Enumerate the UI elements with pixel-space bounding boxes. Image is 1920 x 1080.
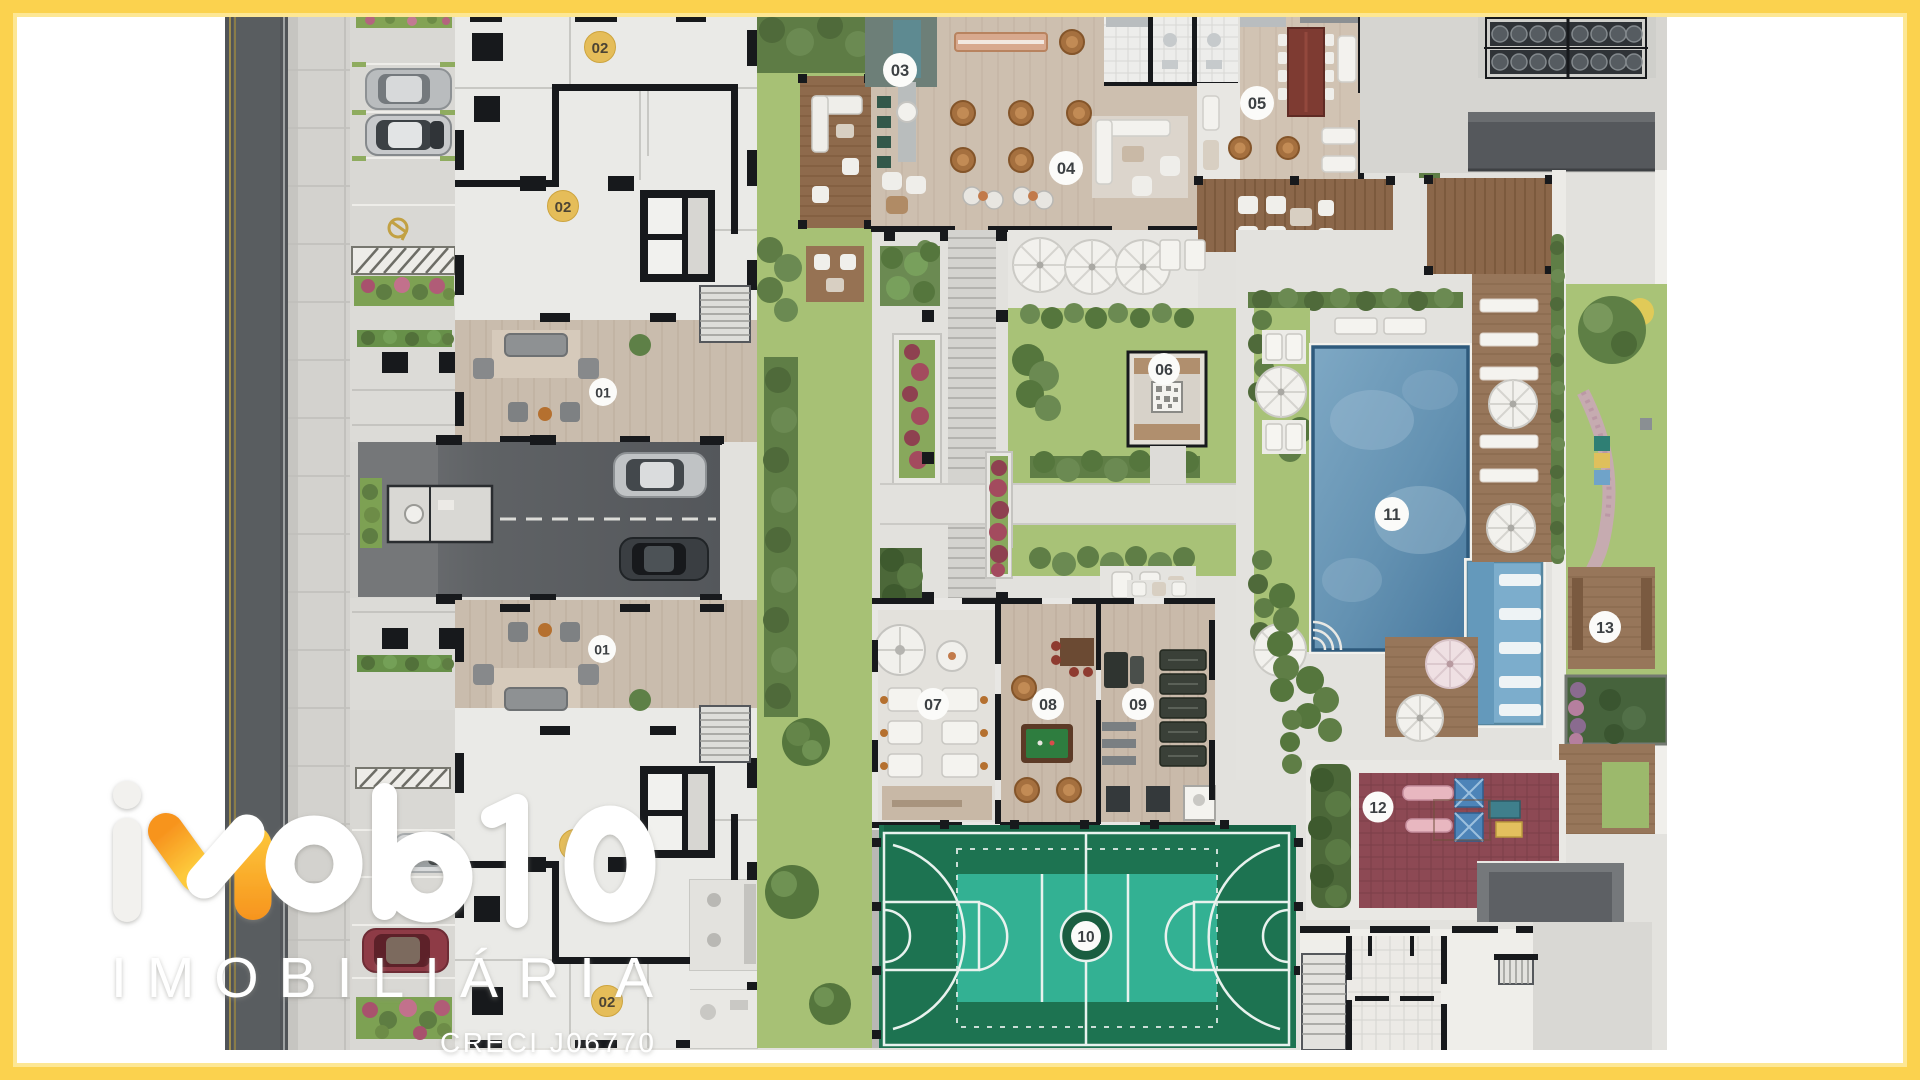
svg-text:01: 01 — [595, 385, 611, 401]
svg-text:05: 05 — [1248, 95, 1266, 113]
svg-text:08: 08 — [1039, 697, 1057, 714]
svg-text:07: 07 — [924, 697, 942, 714]
svg-text:11: 11 — [1383, 506, 1400, 524]
svg-text:10: 10 — [1077, 929, 1094, 946]
svg-text:13: 13 — [1596, 620, 1614, 637]
svg-text:02: 02 — [555, 199, 572, 216]
svg-text:03: 03 — [891, 62, 909, 80]
svg-text:01: 01 — [594, 642, 610, 658]
svg-text:04: 04 — [1057, 160, 1076, 178]
svg-text:06: 06 — [1155, 362, 1173, 379]
svg-text:02: 02 — [599, 994, 616, 1011]
svg-text:CRECI J06770: CRECI J06770 — [440, 1027, 654, 1058]
svg-text:02: 02 — [592, 40, 609, 57]
svg-text:12: 12 — [1369, 800, 1386, 817]
svg-text:09: 09 — [1129, 697, 1147, 714]
